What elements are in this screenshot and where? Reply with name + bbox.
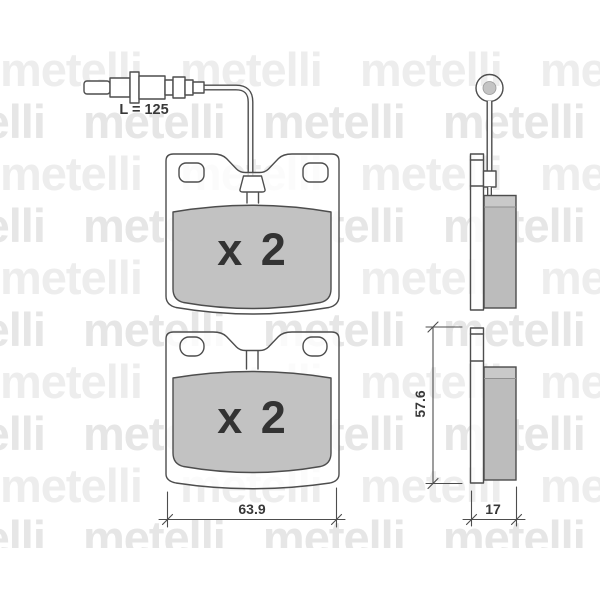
connector-ring	[165, 80, 173, 95]
sensor-grommet	[240, 176, 265, 192]
pad-side-top	[471, 75, 517, 311]
sensor-coil-center	[483, 82, 496, 95]
pad-front-bottom: x 2	[166, 332, 339, 489]
brake-pad-diagram: metelli metelli metelli metelli metelli …	[0, 0, 600, 600]
connector-ring	[173, 77, 185, 98]
backing-plate-side	[471, 328, 484, 483]
pad-front-top: x 2	[166, 154, 339, 314]
quantity-label-top: x 2	[217, 224, 289, 275]
connector-body	[139, 76, 165, 99]
extension-lines	[426, 327, 462, 484]
width-value: 63.9	[238, 501, 265, 517]
sensor-length-label: L = 125	[119, 102, 168, 118]
connector-flange	[130, 72, 139, 103]
dimension-height: 57.6	[412, 322, 462, 489]
technical-drawing: L = 125 x 2 x 2	[0, 0, 600, 600]
connector-ring	[185, 80, 193, 95]
friction-chamfer	[485, 368, 515, 378]
dimension-thickness: 17	[463, 487, 525, 526]
thickness-value: 17	[485, 501, 501, 517]
friction-material-side	[484, 367, 516, 480]
pad-side-bottom	[471, 328, 517, 483]
dimension-width: 63.9	[159, 488, 345, 527]
friction-material-side	[484, 196, 516, 309]
friction-chamfer	[485, 197, 515, 207]
connector-tip	[84, 81, 110, 94]
height-value: 57.6	[412, 390, 428, 417]
wear-sensor-connector	[84, 72, 204, 103]
connector-strain-relief	[193, 82, 204, 93]
connector-neck	[110, 78, 130, 97]
quantity-label-bottom: x 2	[217, 392, 289, 443]
backing-plate-side	[471, 154, 484, 310]
sensor-plug-side	[483, 171, 496, 187]
